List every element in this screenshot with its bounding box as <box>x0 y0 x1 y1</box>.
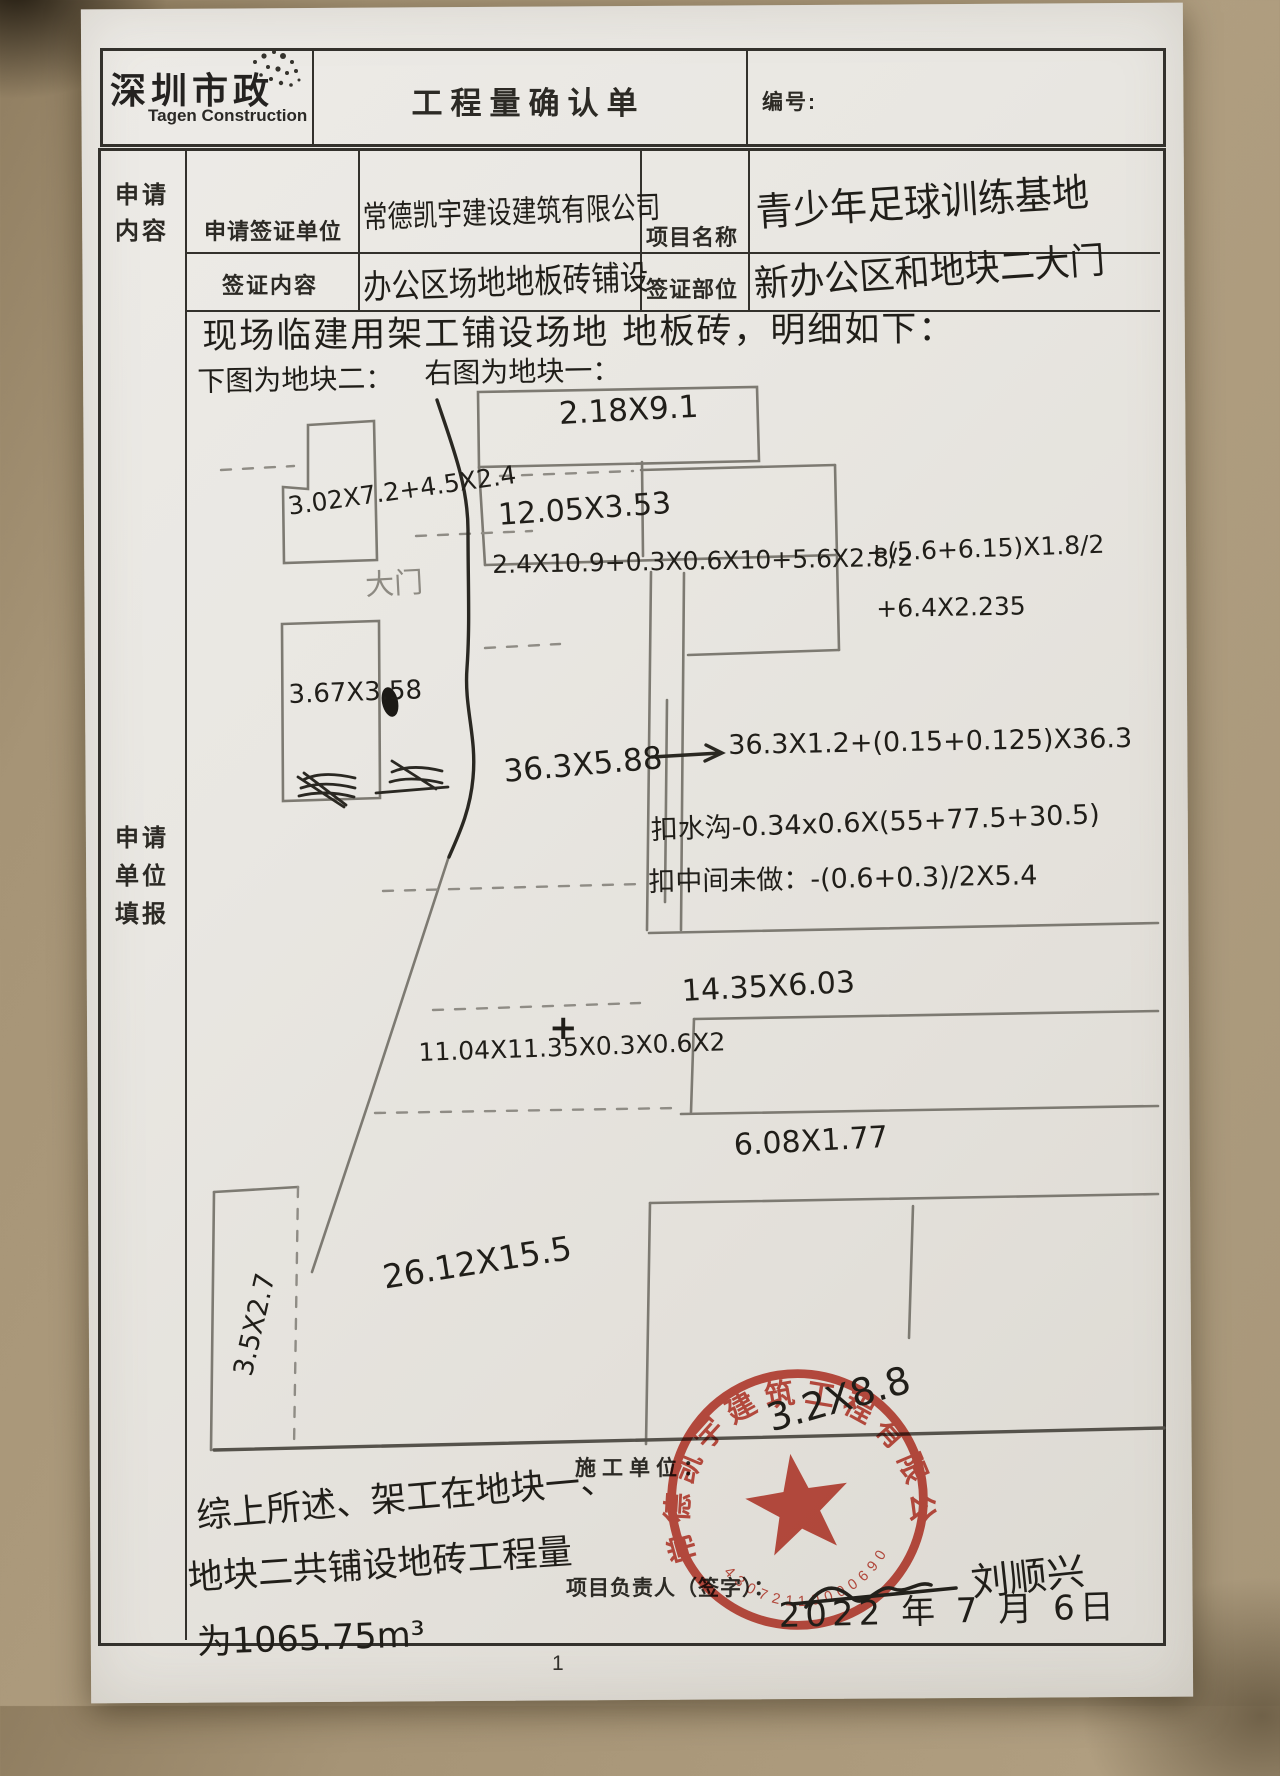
table-border-line <box>358 148 360 310</box>
form-title: 工程量确认单 <box>312 78 745 123</box>
dim-block1-top: 2.18X9.1 <box>558 389 699 432</box>
company-logo-en: Tagen Construction <box>148 106 307 126</box>
field-value-visa-content: 办公区场地地板砖铺设 <box>362 250 649 309</box>
serial-number-label: 编号: <box>762 86 817 116</box>
table-border-line <box>748 148 750 310</box>
field-label-apply-unit: 申请签证单位 <box>204 214 342 246</box>
formula-deduct-middle: 扣中间未做：-(0.6+0.3)/2X5.4 <box>648 853 1038 899</box>
formula-mid-plusfix: + <box>549 1008 578 1048</box>
page-number: 1 <box>552 1652 564 1676</box>
formula-block1-c: +6.4X2.235 <box>876 591 1026 623</box>
row-group-label-apply-unit-fill: 申请单位填报 <box>114 820 170 934</box>
stamp-star-icon <box>739 1446 856 1559</box>
table-border-line <box>746 51 748 144</box>
field-label-visa-location: 签证部位 <box>646 272 738 304</box>
gate-label: 大门 <box>364 559 424 604</box>
caption-block1: 右图为地块一： <box>424 349 621 392</box>
dim-room: 3.67X3.58 <box>288 675 423 710</box>
summary-line-3: 为1065.75m³ <box>196 1606 426 1665</box>
table-border-line <box>185 148 187 1640</box>
row-group-label-apply-content: 申请内容 <box>114 178 170 250</box>
photo-of-form: { "header": { "logo_cn": "深圳市政", "logo_e… <box>0 0 1280 1706</box>
caption-block2: 下图为地块二： <box>197 357 394 400</box>
date-line: 2022 年 7 月 6日 <box>778 1579 1119 1637</box>
field-label-visa-content: 签证内容 <box>222 268 318 300</box>
